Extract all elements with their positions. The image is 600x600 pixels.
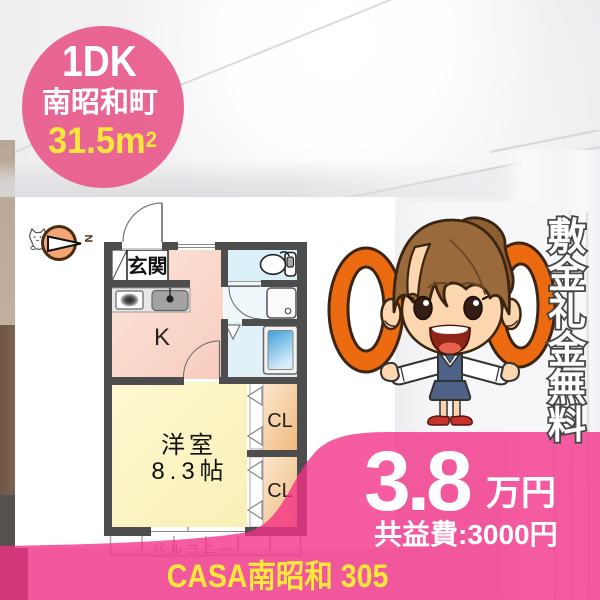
svg-text:敷: 敷 (548, 217, 586, 259)
svg-text:料: 料 (548, 405, 586, 447)
svg-text:金: 金 (547, 329, 587, 372)
svg-text:無: 無 (548, 367, 586, 409)
svg-text:礼: 礼 (548, 292, 586, 334)
svg-text:金: 金 (547, 254, 587, 297)
